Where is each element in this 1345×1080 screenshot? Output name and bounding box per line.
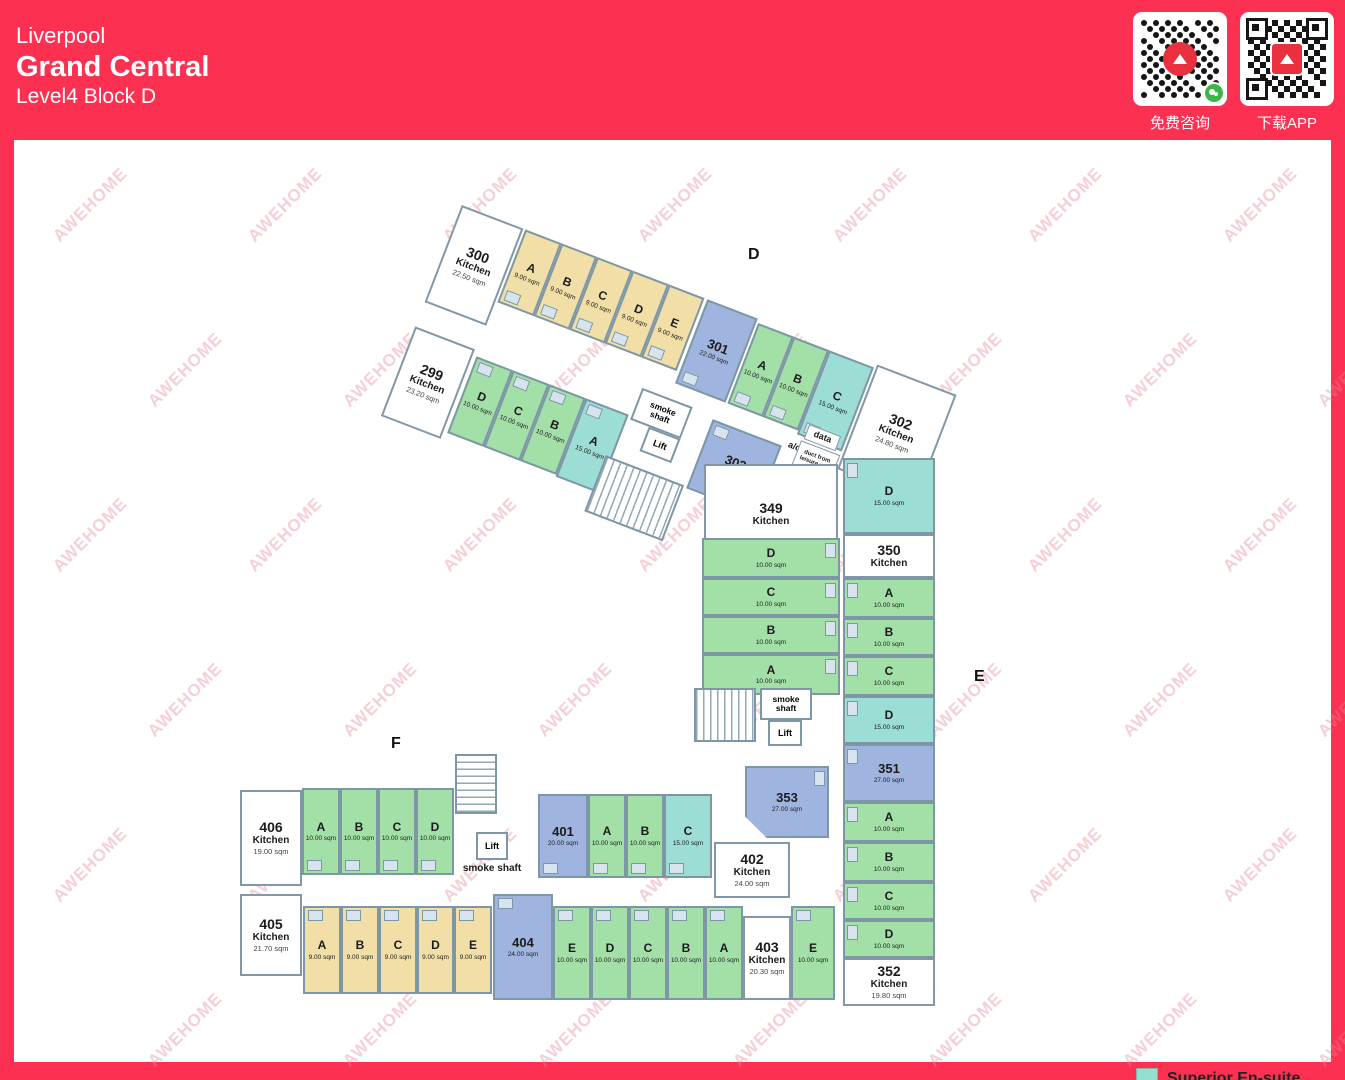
watermark-text: AWEHOME	[534, 659, 617, 742]
watermark-text: AWEHOME	[49, 164, 132, 247]
bathroom-fixture-icon	[712, 425, 730, 441]
bathroom-fixture-icon	[669, 863, 684, 874]
bathroom-fixture-icon	[543, 863, 558, 874]
legend-item-superior: Superior En-suite	[1136, 1064, 1300, 1080]
room-a: A10.00 sqm	[843, 578, 935, 618]
legend-label: Superior En-suite	[1167, 1070, 1300, 1080]
room-a: A10.00 sqm	[843, 802, 935, 842]
room-404: 40424.00 sqm	[493, 894, 553, 1000]
room-d: D9.00 sqm	[417, 906, 454, 994]
room-b: B10.00 sqm	[702, 616, 840, 654]
room-d: D15.00 sqm	[843, 458, 935, 534]
bathroom-fixture-icon	[346, 910, 361, 921]
watermark-text: AWEHOME	[1119, 989, 1202, 1072]
watermark-text: AWEHOME	[634, 164, 717, 247]
block-letter-d: D	[748, 246, 760, 264]
bathroom-fixture-icon	[476, 362, 494, 378]
watermark-text: AWEHOME	[144, 329, 227, 412]
watermark-text: AWEHOME	[924, 989, 1007, 1072]
kitchen-402: 402Kitchen24.00 sqm	[714, 842, 790, 898]
qr-finder-icon	[1246, 78, 1268, 100]
watermark-text: AWEHOME	[1024, 824, 1107, 907]
kitchen-300: 300Kitchen22.50 sqm	[425, 205, 524, 326]
room-d: D10.00 sqm	[702, 538, 840, 578]
awehome-app-icon	[1270, 42, 1304, 76]
app-qr-label: 下载APP	[1240, 112, 1334, 133]
room-c: C10.00 sqm	[843, 882, 935, 920]
bathroom-fixture-icon	[825, 659, 836, 674]
watermark-text: AWEHOME	[1314, 329, 1345, 412]
watermark-text: AWEHOME	[1024, 164, 1107, 247]
lift: Lift	[476, 832, 508, 860]
legend-color-chip	[1136, 1068, 1158, 1080]
bathroom-fixture-icon	[422, 910, 437, 921]
consult-qr-label: 免费咨询	[1133, 112, 1227, 133]
bathroom-fixture-icon	[796, 910, 811, 921]
bathroom-fixture-icon	[847, 847, 858, 862]
bathroom-fixture-icon	[847, 583, 858, 598]
building-title: Grand Central	[16, 50, 209, 85]
bathroom-fixture-icon	[575, 318, 593, 334]
watermark-text: AWEHOME	[339, 659, 422, 742]
room-d: D10.00 sqm	[843, 920, 935, 958]
room-b: B10.00 sqm	[340, 788, 378, 875]
bathroom-fixture-icon	[503, 290, 521, 306]
watermark-text: AWEHOME	[1219, 494, 1302, 577]
watermark-text: AWEHOME	[534, 989, 617, 1072]
watermark-text: AWEHOME	[1024, 494, 1107, 577]
room-c: C10.00 sqm	[702, 578, 840, 616]
kitchen-403: 403Kitchen20.30 sqm	[743, 916, 791, 1000]
bathroom-fixture-icon	[498, 898, 513, 909]
bathroom-fixture-icon	[558, 910, 573, 921]
bathroom-fixture-icon	[672, 910, 687, 921]
block-letter-e: E	[974, 668, 985, 686]
watermark-text: AWEHOME	[1119, 659, 1202, 742]
bathroom-fixture-icon	[814, 771, 825, 786]
room-b: B10.00 sqm	[843, 618, 935, 656]
room-b: B10.00 sqm	[667, 906, 705, 1000]
room-d: D15.00 sqm	[843, 696, 935, 744]
watermark-text: AWEHOME	[144, 659, 227, 742]
note-smoke-shaft: smoke shaft	[456, 862, 528, 875]
room-a: A9.00 sqm	[303, 906, 341, 994]
room-353: 35327.00 sqm	[745, 766, 829, 838]
room-c: C15.00 sqm	[664, 794, 712, 878]
room-c: C10.00 sqm	[378, 788, 416, 875]
room-a: A10.00 sqm	[588, 794, 626, 878]
watermark-text: AWEHOME	[339, 989, 422, 1072]
awehome-logo-icon	[1163, 42, 1197, 76]
bathroom-fixture-icon	[383, 860, 398, 871]
watermark-text: AWEHOME	[1314, 659, 1345, 742]
watermark-text: AWEHOME	[244, 164, 327, 247]
watermark-text: AWEHOME	[1314, 989, 1345, 1072]
room-e: E10.00 sqm	[791, 906, 835, 1000]
room-a: A10.00 sqm	[705, 906, 743, 1000]
bathroom-fixture-icon	[540, 304, 558, 320]
bathroom-fixture-icon	[825, 543, 836, 558]
watermark-text: AWEHOME	[49, 824, 132, 907]
watermark-text: AWEHOME	[439, 494, 522, 577]
bathroom-fixture-icon	[769, 405, 787, 421]
watermark-text: AWEHOME	[1219, 164, 1302, 247]
room-b: B10.00 sqm	[626, 794, 664, 878]
bathroom-fixture-icon	[345, 860, 360, 871]
city-label: Liverpool	[16, 22, 209, 50]
watermark-text: AWEHOME	[924, 659, 1007, 742]
bathroom-fixture-icon	[384, 910, 399, 921]
bathroom-fixture-icon	[593, 863, 608, 874]
bathroom-fixture-icon	[585, 404, 603, 420]
bathroom-fixture-icon	[847, 661, 858, 676]
bathroom-fixture-icon	[631, 863, 646, 874]
stairs-icon	[694, 688, 756, 742]
bathroom-fixture-icon	[681, 371, 699, 387]
watermark-text: AWEHOME	[1119, 329, 1202, 412]
bathroom-fixture-icon	[308, 910, 323, 921]
watermark-text: AWEHOME	[144, 989, 227, 1072]
bathroom-fixture-icon	[307, 860, 322, 871]
bathroom-fixture-icon	[634, 910, 649, 921]
room-d: D10.00 sqm	[416, 788, 454, 875]
room-b: B9.00 sqm	[341, 906, 379, 994]
page-background: Liverpool Grand Central Level4 Block D 免…	[0, 0, 1345, 1080]
consult-qr-card	[1133, 12, 1227, 106]
mountain-icon	[1280, 54, 1294, 64]
room-a: A10.00 sqm	[302, 788, 340, 875]
bathroom-fixture-icon	[596, 910, 611, 921]
bathroom-fixture-icon	[847, 463, 858, 478]
room-d: D10.00 sqm	[591, 906, 629, 1000]
qr-finder-icon	[1306, 18, 1328, 40]
room-b: B10.00 sqm	[843, 842, 935, 882]
bathroom-fixture-icon	[611, 331, 629, 347]
room-e: E10.00 sqm	[553, 906, 591, 1000]
bathroom-fixture-icon	[847, 749, 858, 764]
app-qr-card	[1240, 12, 1334, 106]
lift: Lift	[768, 720, 802, 746]
bathroom-fixture-icon	[733, 391, 751, 407]
mountain-icon	[1173, 54, 1187, 64]
kitchen-405: 405Kitchen21.70 sqm	[240, 894, 302, 976]
bathroom-fixture-icon	[847, 807, 858, 822]
legend-col2: Superior En-suiteStudioDisabled Studio	[1136, 1064, 1300, 1080]
block-letter-f: F	[391, 735, 401, 753]
floorplan-canvas: AWEHOMEAWEHOMEAWEHOMEAWEHOMEAWEHOMEAWEHO…	[14, 140, 1331, 1062]
room-c: C9.00 sqm	[379, 906, 417, 994]
kitchen-406: 406Kitchen19.00 sqm	[240, 790, 302, 886]
room-351: 35127.00 sqm	[843, 744, 935, 802]
bathroom-fixture-icon	[421, 860, 436, 871]
bathroom-fixture-icon	[710, 910, 725, 921]
watermark-text: AWEHOME	[729, 989, 812, 1072]
header: Liverpool Grand Central Level4 Block D	[16, 22, 209, 111]
stairs-icon	[455, 754, 497, 814]
watermark-text: AWEHOME	[829, 164, 912, 247]
bathroom-fixture-icon	[847, 925, 858, 940]
bathroom-fixture-icon	[847, 701, 858, 716]
kitchen-352: 352Kitchen19.80 sqm	[843, 958, 935, 1006]
room-c: C10.00 sqm	[629, 906, 667, 1000]
watermark-text: AWEHOME	[1219, 824, 1302, 907]
level-label: Level4 Block D	[16, 84, 209, 110]
bathroom-fixture-icon	[512, 376, 530, 392]
room-c: C10.00 sqm	[843, 656, 935, 696]
watermark-text: AWEHOME	[244, 494, 327, 577]
bathroom-fixture-icon	[847, 887, 858, 902]
bathroom-fixture-icon	[549, 390, 567, 406]
bathroom-fixture-icon	[825, 583, 836, 598]
room-401: 40120.00 sqm	[538, 794, 588, 878]
watermark-text: AWEHOME	[49, 494, 132, 577]
bathroom-fixture-icon	[847, 623, 858, 638]
smoke-shaft: smoke shaft	[760, 688, 812, 720]
kitchen-350: 350Kitchen	[843, 534, 935, 578]
bathroom-fixture-icon	[825, 621, 836, 636]
qr-finder-icon	[1246, 18, 1268, 40]
wechat-icon	[1203, 82, 1225, 104]
bathroom-fixture-icon	[459, 910, 474, 921]
bathroom-fixture-icon	[647, 345, 665, 361]
room-e: E9.00 sqm	[454, 906, 492, 994]
